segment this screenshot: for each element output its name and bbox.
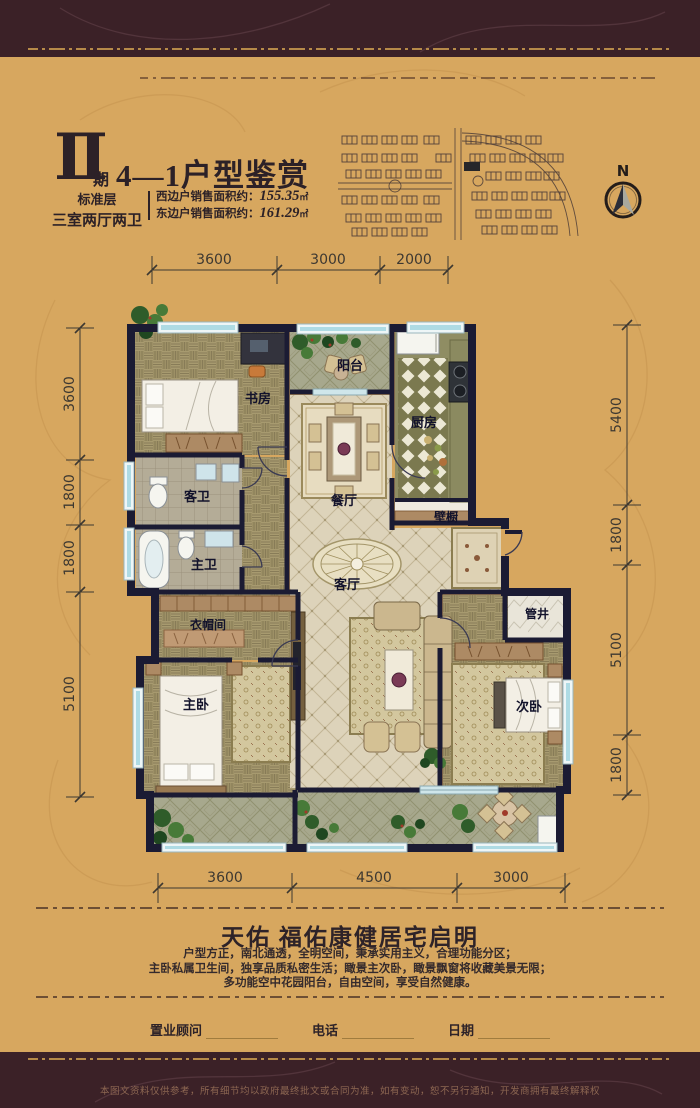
north-label: N (617, 162, 630, 180)
room-label-kitchen: 厨房 (411, 415, 437, 431)
phase-suffix: 期 (93, 166, 109, 190)
description-line: 户型方正，南北通透，全明空间，秉承实用主义，合理功能分区； (0, 947, 700, 962)
window (297, 324, 389, 334)
signature-row: 置业顾问 电话 日期 (150, 1020, 570, 1039)
dim-left-2: 1800 (62, 474, 78, 510)
spec-block: 标准层 三室两厅两卫 (50, 189, 144, 230)
floor-type: 标准层 (50, 189, 144, 208)
room-label-guest-bath: 客卫 (184, 489, 210, 505)
description-line: 多功能空中花园阳台，自由空间，享受自然健康。 (0, 976, 700, 991)
area-info: 西边户销售面积约：155.35㎡ 东边户销售面积约：161.29㎡ (156, 188, 308, 222)
room-label-balcony: 阳台 (337, 358, 363, 374)
window (124, 528, 134, 580)
consultant-blank-line (206, 1024, 278, 1039)
area-east: 东边户销售面积约：161.29㎡ (156, 205, 308, 222)
description: 户型方正，南北通透，全明空间，秉承实用主义，合理功能分区； 主卧私属卫生间，独享… (0, 947, 700, 991)
window (563, 680, 573, 764)
window (473, 843, 557, 852)
consultant-field: 置业顾问 (150, 1020, 278, 1039)
room-label-study: 书房 (245, 391, 271, 407)
terrace-cabinet (538, 816, 558, 843)
phone-field: 电话 (312, 1020, 414, 1039)
master-rug (232, 666, 290, 762)
highlighted-building (464, 162, 480, 171)
second-wardrobe (455, 643, 543, 660)
dim-top-1: 3600 (196, 252, 232, 268)
dim-top-2: 3000 (310, 252, 346, 268)
master-toilet (178, 537, 194, 559)
header-divider (148, 191, 150, 220)
guest-sink (196, 464, 216, 480)
date-blank-line (478, 1024, 550, 1039)
dim-right-4: 1800 (609, 747, 625, 783)
disclaimer: 本图文资料仅供参考，所有细节均以政府最终批文或合同为准，如有变动，恕不另行通知，… (0, 1083, 700, 1097)
date-field: 日期 (448, 1020, 550, 1039)
dim-bottom-1: 3600 (207, 870, 243, 886)
room-label-closet: 壁橱 (434, 509, 458, 524)
dim-right-3: 5100 (609, 632, 625, 668)
dim-left-3: 1800 (62, 540, 78, 576)
area-west: 西边户销售面积约：155.35㎡ (156, 188, 308, 205)
fridge (397, 332, 439, 354)
dim-right-2: 1800 (609, 517, 625, 553)
room-label-master-bedroom: 主卧 (183, 697, 209, 713)
site-plan (338, 128, 578, 240)
study-chair (249, 366, 265, 377)
room-label-pipe-shaft: 管井 (525, 606, 549, 621)
north-compass-icon: N (606, 162, 640, 217)
window (307, 843, 407, 852)
guest-toilet (149, 484, 167, 508)
dim-left-1: 3600 (62, 376, 78, 412)
dim-bottom-3: 3000 (493, 870, 529, 886)
window (124, 462, 134, 510)
window (162, 843, 286, 852)
room-label-second-bedroom: 次卧 (516, 699, 542, 715)
room-label-dining: 餐厅 (330, 493, 357, 509)
poster-page: N (0, 0, 700, 1108)
dim-right-1: 5400 (609, 397, 625, 433)
room-label-cloakroom: 衣帽间 (190, 617, 226, 632)
room-label-living: 客厅 (334, 577, 360, 593)
window (407, 322, 464, 333)
layout-type: 三室两厅两卫 (50, 209, 144, 230)
dim-top-3: 2000 (396, 252, 432, 268)
dim-bottom-2: 4500 (356, 870, 392, 886)
armchair (374, 602, 420, 630)
dim-left-4: 5100 (62, 676, 78, 712)
window (158, 322, 238, 333)
window (133, 688, 143, 768)
study-dresser (166, 434, 242, 452)
phone-blank-line (342, 1024, 414, 1039)
description-line: 主卧私属卫生间，独享品质私密生活；瞰景主次卧，瞰景飘窗将收藏美景无限； (0, 962, 700, 977)
room-label-master-bath: 主卫 (191, 557, 217, 573)
master-sink (205, 531, 233, 547)
